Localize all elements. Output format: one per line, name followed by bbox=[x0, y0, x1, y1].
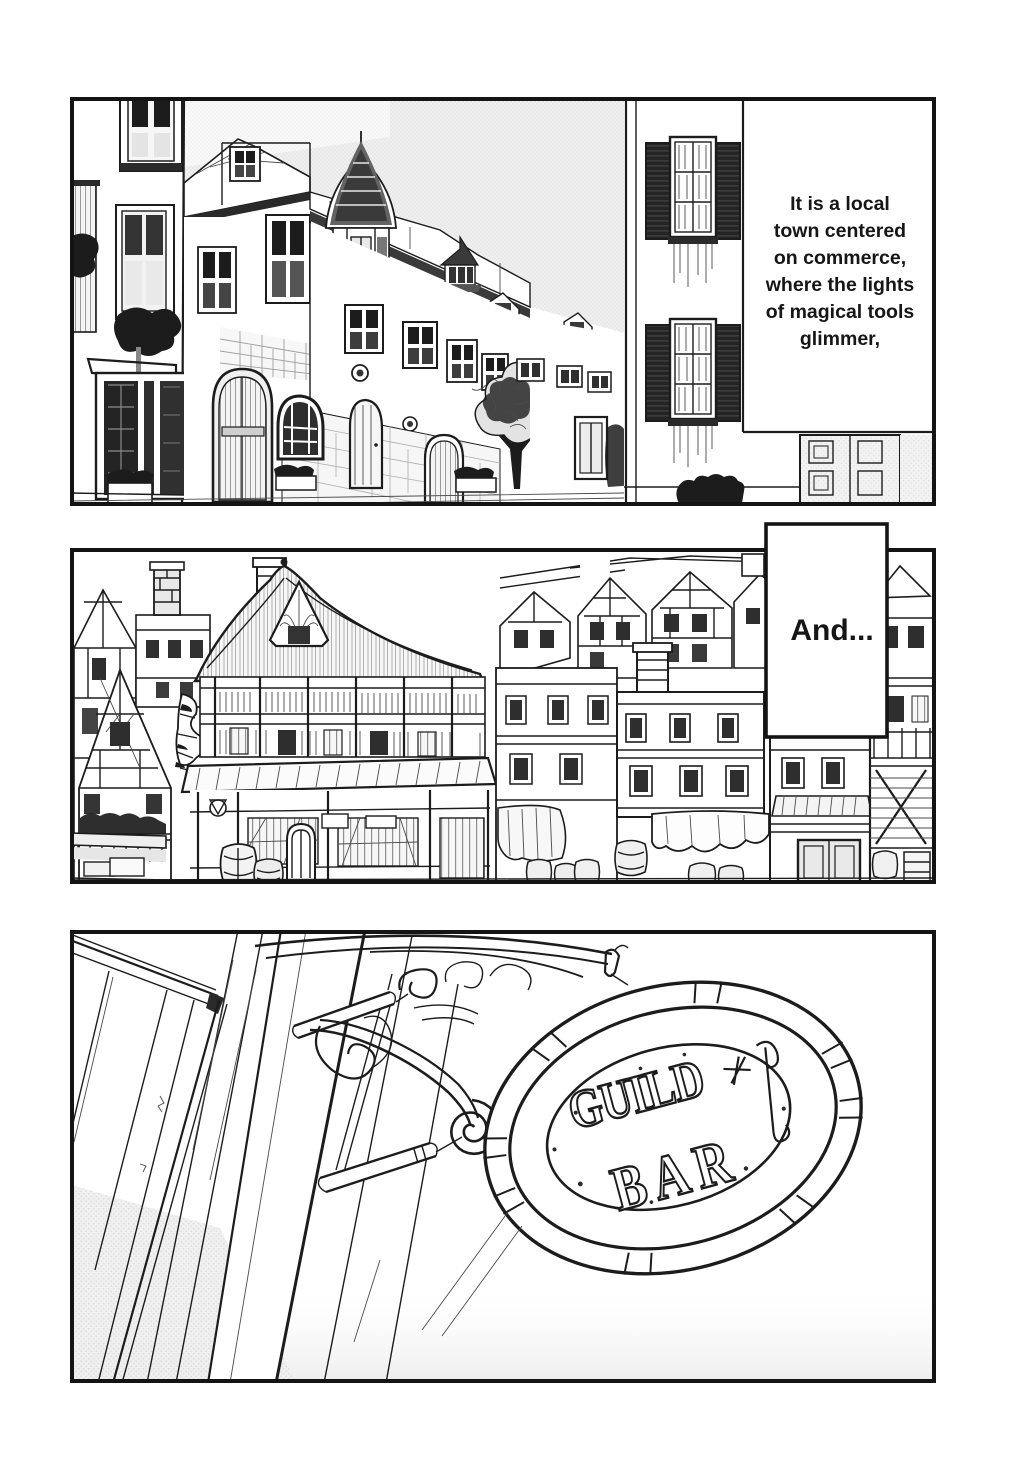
svg-text:It is a local: It is a local bbox=[790, 193, 890, 215]
svg-text:glimmer,: glimmer, bbox=[800, 328, 880, 350]
svg-text:And...: And... bbox=[790, 614, 873, 647]
svg-text:of magical tools: of magical tools bbox=[766, 301, 915, 323]
svg-text:town centered: town centered bbox=[774, 220, 906, 242]
svg-text:where the lights: where the lights bbox=[765, 274, 915, 296]
svg-text:on commerce,: on commerce, bbox=[774, 247, 906, 269]
